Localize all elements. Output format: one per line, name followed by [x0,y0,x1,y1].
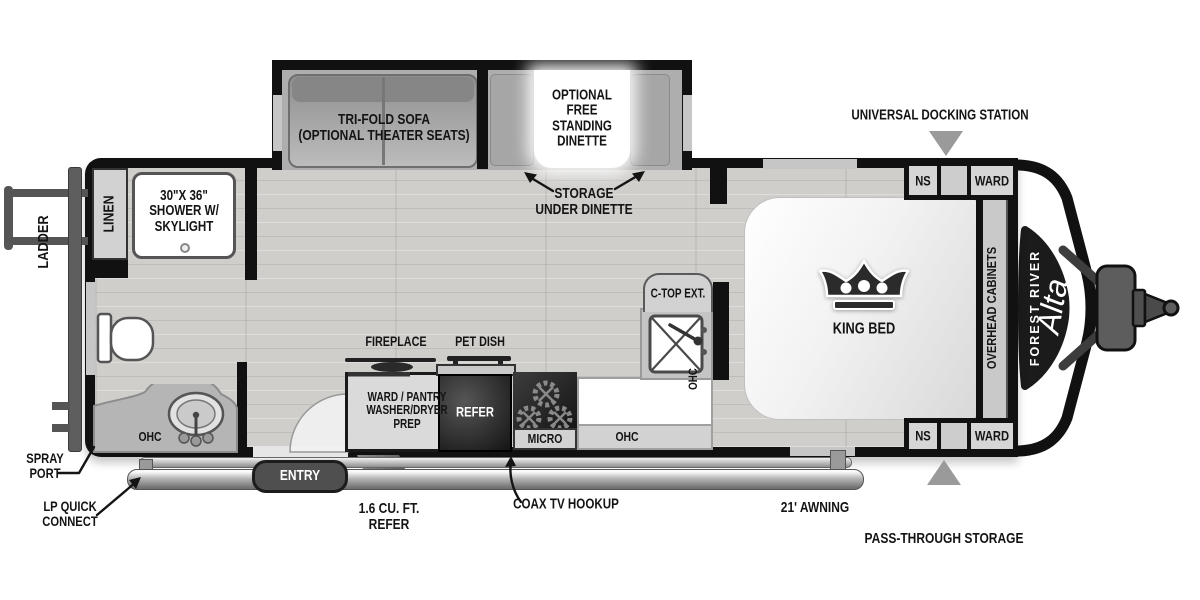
linen-label: LINEN [102,196,117,233]
storage-under-dinette-label: STORAGE UNDER DINETTE [535,186,632,218]
ctop-ext-label: C-TOP EXT. [651,287,706,300]
king-bed-label: KING BED [833,322,896,339]
floorplan-canvas: FOREST RIVER Alta [0,0,1200,600]
ns-bottom-label: NS [915,429,931,444]
ns-top-label: NS [915,174,931,189]
ward-bottom-label: WARD [975,429,1009,444]
kitchen-ohc-label: OHC [615,430,638,444]
exterior-refer-label: 1.6 CU. FT. REFER [359,501,420,533]
refer-label: REFER [456,405,494,420]
docking-station-label: UNIVERSAL DOCKING STATION [851,108,1028,123]
pass-through-label: PASS-THROUGH STORAGE [865,531,1024,547]
shower-label: 30"X 36" SHOWER W/ SKYLIGHT [149,189,219,235]
dinette-label: OPTIONAL FREE STANDING DINETTE [552,88,612,149]
spray-port-label: SPRAY PORT [26,451,64,481]
lp-connect-line [97,482,136,515]
ladder-label: LADDER [36,215,52,268]
awning-label: 21' AWNING [781,500,849,516]
entry-label: ENTRY [280,468,320,484]
ward-pantry-label: WARD / PANTRY WASHER/DRYER PREP [366,391,447,431]
pet-dish-label: PET DISH [455,335,505,349]
coax-label: COAX TV HOOKUP [513,497,619,512]
fireplace-label: FIREPLACE [365,335,426,349]
lp-quick-connect-label: LP QUICK CONNECT [42,499,97,529]
overhead-cabinets-label: OVERHEAD CABINETS [985,247,999,369]
bathroom-ohc-label: OHC [138,430,161,444]
micro-label: MICRO [528,432,563,446]
ward-top-label: WARD [975,174,1009,189]
sofa-label: TRI-FOLD SOFA (OPTIONAL THEATER SEATS) [298,112,469,144]
sink-ohc-label: OHC [688,368,700,390]
